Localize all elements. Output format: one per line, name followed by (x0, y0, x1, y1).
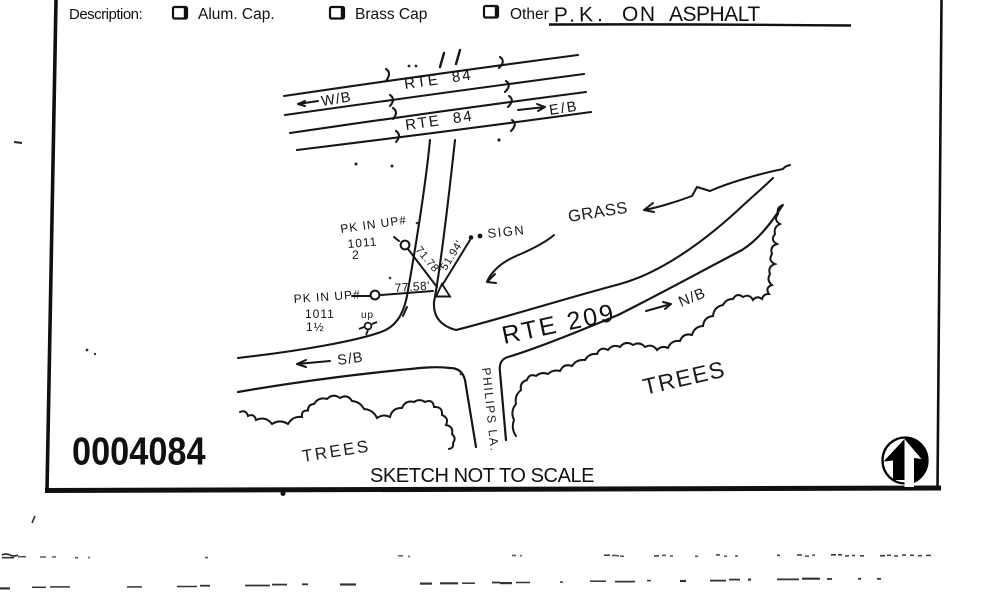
svg-text:1011: 1011 (305, 307, 335, 321)
svg-text:Other: Other (510, 6, 549, 23)
svg-text:Alum. Cap.: Alum. Cap. (198, 6, 275, 23)
svg-text:SKETCH NOT TO SCALE: SKETCH NOT TO SCALE (370, 465, 595, 487)
svg-text:Brass Cap: Brass Cap (355, 6, 427, 23)
svg-text:0004084: 0004084 (72, 429, 206, 473)
svg-text:ON: ON (622, 3, 657, 26)
svg-text:1½: 1½ (306, 320, 325, 334)
svg-text:ASPHALT: ASPHALT (669, 3, 760, 26)
svg-text:up: up (361, 310, 374, 321)
svg-text:Description:: Description: (69, 6, 142, 23)
svg-text:P.K.: P.K. (554, 3, 607, 27)
svg-text:77.58': 77.58' (394, 279, 430, 295)
svg-text:2: 2 (352, 248, 360, 262)
